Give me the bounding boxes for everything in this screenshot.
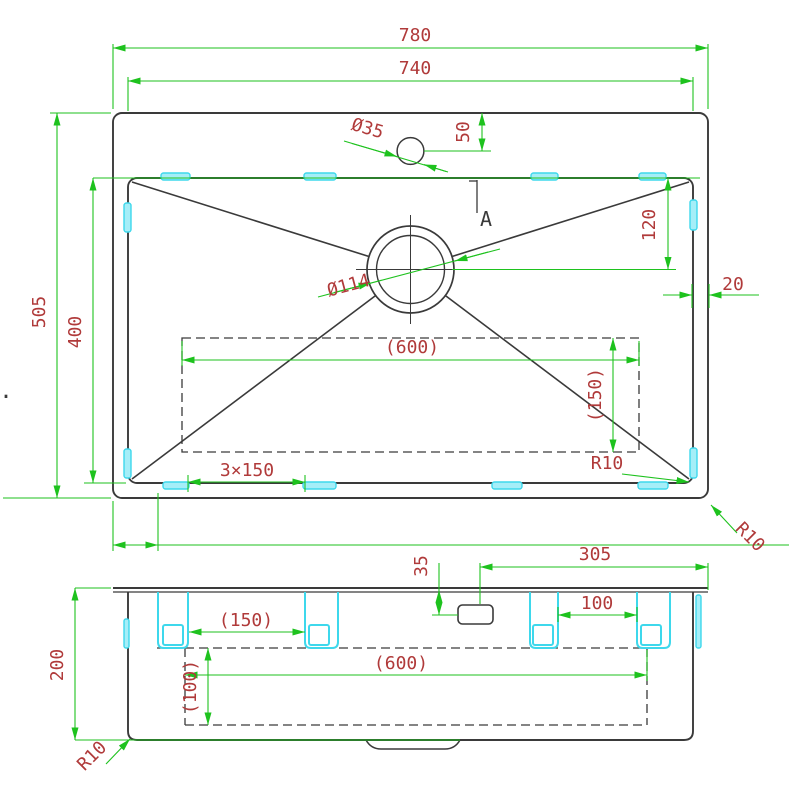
dim-bracket-pitch-right: 100 — [558, 593, 637, 622]
dim-text-505: 505 — [29, 296, 50, 329]
callout-rim-radius: R10 — [711, 505, 769, 556]
leg-brackets — [124, 592, 701, 648]
dim-text-50: 50 — [453, 121, 474, 143]
dim-clip-pitch: 3×150 — [188, 460, 305, 492]
dim-text-120: 120 — [639, 209, 660, 242]
dim-text-740: 740 — [399, 58, 432, 79]
dim-faucet-offset: 50 — [424, 113, 491, 151]
dim-overall-depth: 505 — [3, 113, 111, 498]
dim-text-35: 35 — [411, 555, 432, 577]
dim-bracket-pitch-left: (150) — [189, 610, 305, 632]
section-mark-label: A — [480, 207, 492, 231]
dim-base-length-side: (600) — [185, 650, 647, 681]
dim-text-150-top: (150) — [585, 368, 606, 422]
dim-text-150-side: (150) — [219, 610, 273, 631]
dim-text-600-side: (600) — [374, 653, 428, 674]
dim-text-100v: (100) — [180, 660, 201, 714]
dim-text-r10-bowl: R10 — [591, 453, 624, 474]
dim-text-400: 400 — [65, 316, 86, 349]
dim-text-20: 20 — [722, 274, 744, 295]
top-view: 780 740 505 400 50 — [0, 25, 789, 556]
dim-inner-width: 740 — [128, 58, 693, 111]
dim-text-3x150: 3×150 — [220, 460, 274, 481]
callout-side-radius: R10 — [73, 737, 130, 775]
dim-drain-drop: 35 — [411, 555, 458, 615]
dim-text-780: 780 — [399, 25, 432, 46]
dim-text-dia35: Ø35 — [349, 114, 386, 143]
side-view: 305 35 100 (150) (600) (1 — [47, 544, 708, 775]
dim-text-600-top: (600) — [385, 337, 439, 358]
dim-bowl-depth: 400 — [65, 178, 700, 483]
dim-text-dia114: Ø114 — [325, 270, 372, 302]
cad-drawing: 780 740 505 400 50 — [0, 0, 792, 800]
stray-dot: . — [0, 379, 13, 404]
dim-base-height: (100) — [180, 648, 208, 725]
drain-knockout — [458, 605, 493, 624]
dim-text-r10-rim: R10 — [731, 518, 769, 556]
sink-drawing-canvas: 780 740 505 400 50 — [0, 0, 792, 800]
dim-text-100: 100 — [581, 593, 614, 614]
dim-base-length-top: (600) — [182, 337, 639, 366]
leader-drain-dia: Ø114 — [318, 249, 500, 301]
dim-rim-gap: 20 — [663, 274, 759, 308]
dim-text-305: 305 — [579, 544, 612, 565]
drain-boss — [366, 740, 460, 749]
section-mark: A — [469, 180, 492, 231]
dim-text-200: 200 — [47, 649, 68, 682]
dim-base-width-top: (150) — [585, 338, 613, 452]
dim-reference-offset — [113, 493, 789, 551]
dim-text-r10-side: R10 — [73, 737, 111, 775]
leader-faucet-dia: Ø35 — [344, 114, 448, 172]
